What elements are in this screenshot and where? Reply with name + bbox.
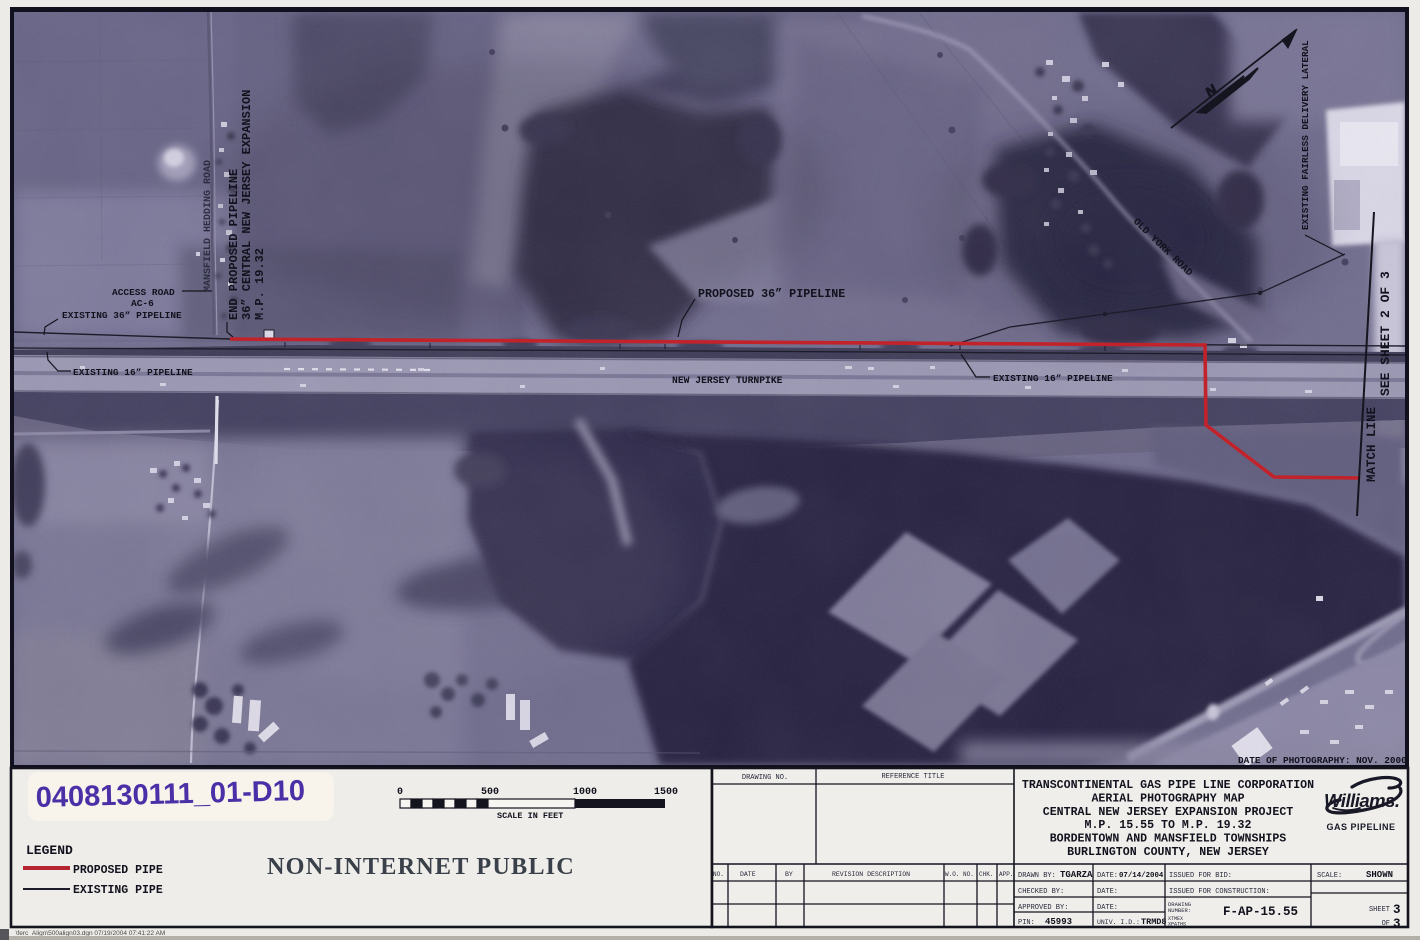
- svg-text:_\ferc_Align\500align03.dgn 0: _\ferc_Align\500align03.dgn 07/19/2004 0…: [11, 930, 165, 937]
- svg-text:EXISTING PIPE: EXISTING PIPE: [73, 884, 163, 897]
- svg-text:APPROVED BY:: APPROVED BY:: [1018, 904, 1068, 912]
- svg-text:SCALE:: SCALE:: [1317, 872, 1342, 880]
- svg-text:3: 3: [1393, 917, 1401, 931]
- svg-text:W.O. NO.: W.O. NO.: [945, 871, 974, 878]
- svg-text:ISSUED FOR BID:: ISSUED FOR BID:: [1169, 872, 1232, 880]
- svg-text:BORDENTOWN AND MANSFIELD TOWNS: BORDENTOWN AND MANSFIELD TOWNSHIPS: [1050, 833, 1287, 846]
- svg-text:NEW JERSEY TURNPIKE: NEW JERSEY TURNPIKE: [672, 375, 783, 386]
- svg-text:APP.: APP.: [999, 871, 1013, 878]
- svg-text:PROPOSED PIPE: PROPOSED PIPE: [73, 864, 163, 877]
- svg-text:DATE OF PHOTOGRAPHY: NOV. 2000: DATE OF PHOTOGRAPHY: NOV. 2000: [1238, 755, 1407, 766]
- svg-text:M.P. 19.32: M.P. 19.32: [253, 248, 267, 320]
- svg-text:SHEET: SHEET: [1369, 906, 1390, 914]
- svg-text:DRAWN BY:: DRAWN BY:: [1018, 872, 1056, 880]
- svg-text:TRMD8: TRMD8: [1141, 917, 1167, 927]
- svg-text:LEGEND: LEGEND: [26, 843, 73, 858]
- svg-text:DATE:: DATE:: [1097, 904, 1118, 912]
- svg-text:EXISTING 16” PIPELINE: EXISTING 16” PIPELINE: [73, 367, 193, 378]
- svg-text:500: 500: [481, 787, 499, 798]
- svg-text:MATCH LINE: MATCH LINE: [1365, 407, 1379, 482]
- svg-text:3: 3: [1393, 903, 1401, 917]
- svg-text:EXISTING FAIRLESS DELIVERY LAT: EXISTING FAIRLESS DELIVERY LATERAL: [1300, 40, 1311, 230]
- svg-text:REFERENCE TITLE: REFERENCE TITLE: [881, 773, 944, 781]
- svg-text:OF: OF: [1382, 920, 1390, 928]
- svg-text:XPATHS: XPATHS: [1168, 922, 1186, 928]
- svg-text:SEE SHEET 2 OF 3: SEE SHEET 2 OF 3: [1378, 271, 1393, 396]
- svg-text:45993: 45993: [1045, 917, 1072, 927]
- svg-text:DATE: DATE: [740, 871, 756, 878]
- svg-text:AC-6: AC-6: [131, 298, 154, 309]
- svg-text:GAS PIPELINE: GAS PIPELINE: [1326, 822, 1395, 832]
- svg-text:36” CENTRAL NEW JERSEY EXPANSI: 36” CENTRAL NEW JERSEY EXPANSION: [240, 90, 254, 320]
- svg-text:NO.: NO.: [713, 871, 724, 878]
- svg-text:REVISION DESCRIPTION: REVISION DESCRIPTION: [832, 871, 910, 878]
- svg-text:1000: 1000: [573, 787, 597, 798]
- svg-text:CHK.: CHK.: [979, 871, 993, 878]
- svg-text:DRAWING NO.: DRAWING NO.: [742, 774, 788, 782]
- svg-text:ISSUED FOR CONSTRUCTION:: ISSUED FOR CONSTRUCTION:: [1169, 888, 1270, 896]
- svg-text:DATE:: DATE:: [1097, 872, 1118, 880]
- svg-text:EXISTING 36” PIPELINE: EXISTING 36” PIPELINE: [62, 310, 182, 321]
- svg-text:ACCESS ROAD: ACCESS ROAD: [112, 287, 175, 298]
- svg-text:F-AP-15.55: F-AP-15.55: [1223, 905, 1298, 919]
- svg-text:DATE:: DATE:: [1097, 888, 1118, 896]
- svg-text:SHOWN: SHOWN: [1366, 870, 1393, 880]
- svg-text:CENTRAL NEW JERSEY EXPANSION P: CENTRAL NEW JERSEY EXPANSION PROJECT: [1043, 806, 1294, 819]
- svg-text:CHECKED BY:: CHECKED BY:: [1018, 888, 1064, 896]
- svg-text:TGARZA: TGARZA: [1060, 870, 1093, 880]
- svg-text:0: 0: [397, 787, 403, 798]
- svg-text:AERIAL PHOTOGRAPHY MAP: AERIAL PHOTOGRAPHY MAP: [1091, 792, 1244, 805]
- svg-text:NUMBER:: NUMBER:: [1168, 907, 1191, 914]
- svg-text:TRANSCONTINENTAL GAS PIPE LINE: TRANSCONTINENTAL GAS PIPE LINE CORPORATI…: [1022, 779, 1314, 792]
- svg-text:PIN:: PIN:: [1018, 919, 1035, 927]
- svg-text:NON-INTERNET PUBLIC: NON-INTERNET PUBLIC: [267, 853, 575, 880]
- svg-text:PROPOSED 36” PIPELINE: PROPOSED 36” PIPELINE: [698, 287, 845, 301]
- svg-text:BURLINGTON COUNTY, NEW JERSEY: BURLINGTON COUNTY, NEW JERSEY: [1067, 846, 1269, 859]
- svg-text:BY: BY: [785, 871, 793, 878]
- svg-text:1500: 1500: [654, 787, 678, 798]
- svg-text:EXISTING 16” PIPELINE: EXISTING 16” PIPELINE: [993, 373, 1113, 384]
- svg-text:07/14/2004: 07/14/2004: [1119, 872, 1164, 880]
- svg-text:UNIV. I.D.:: UNIV. I.D.:: [1097, 919, 1140, 926]
- svg-text:SCALE IN FEET: SCALE IN FEET: [497, 811, 563, 821]
- svg-text:M.P. 15.55 TO M.P. 19.32: M.P. 15.55 TO M.P. 19.32: [1085, 819, 1252, 832]
- svg-text:END PROPOSED PIPELINE: END PROPOSED PIPELINE: [227, 169, 241, 320]
- svg-text:MANSFIELD HEDDING ROAD: MANSFIELD HEDDING ROAD: [203, 160, 214, 292]
